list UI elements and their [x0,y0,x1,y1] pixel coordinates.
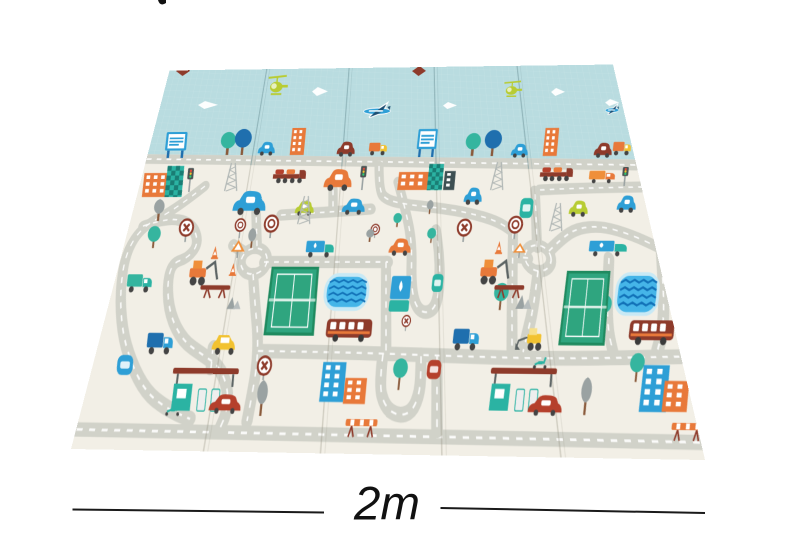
svg-text:2m: 2m [353,478,420,531]
